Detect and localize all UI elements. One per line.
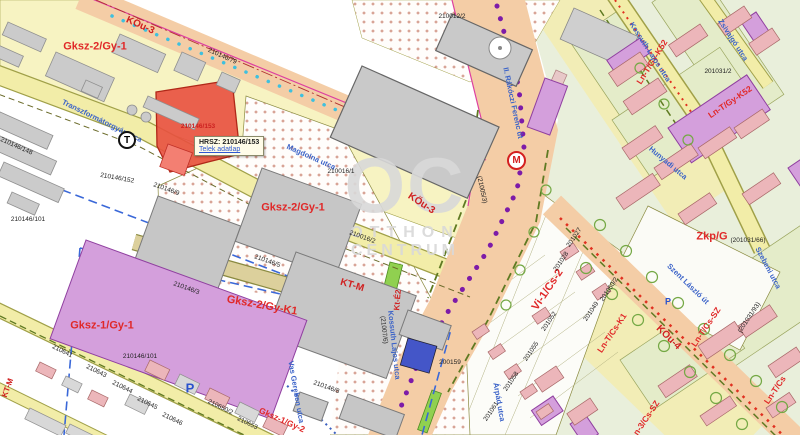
metro-letter: M (512, 155, 520, 166)
zoning-map-canvas[interactable]: OC OTTHON CENTRUM Gksz-2/Gy-1KÖu-3KÖu-3K… (0, 0, 800, 435)
map-graphics (0, 0, 800, 435)
transit-stop-icon: T (118, 131, 136, 149)
parcel-tooltip-title: HRSZ: 210146/153 (199, 139, 259, 146)
parcel-tooltip: HRSZ: 210146/153 Telek adatlap (194, 136, 264, 156)
metro-station-icon: M (507, 151, 526, 170)
parcel-datasheet-link[interactable]: Telek adatlap (199, 146, 259, 153)
t-letter: T (124, 135, 130, 146)
